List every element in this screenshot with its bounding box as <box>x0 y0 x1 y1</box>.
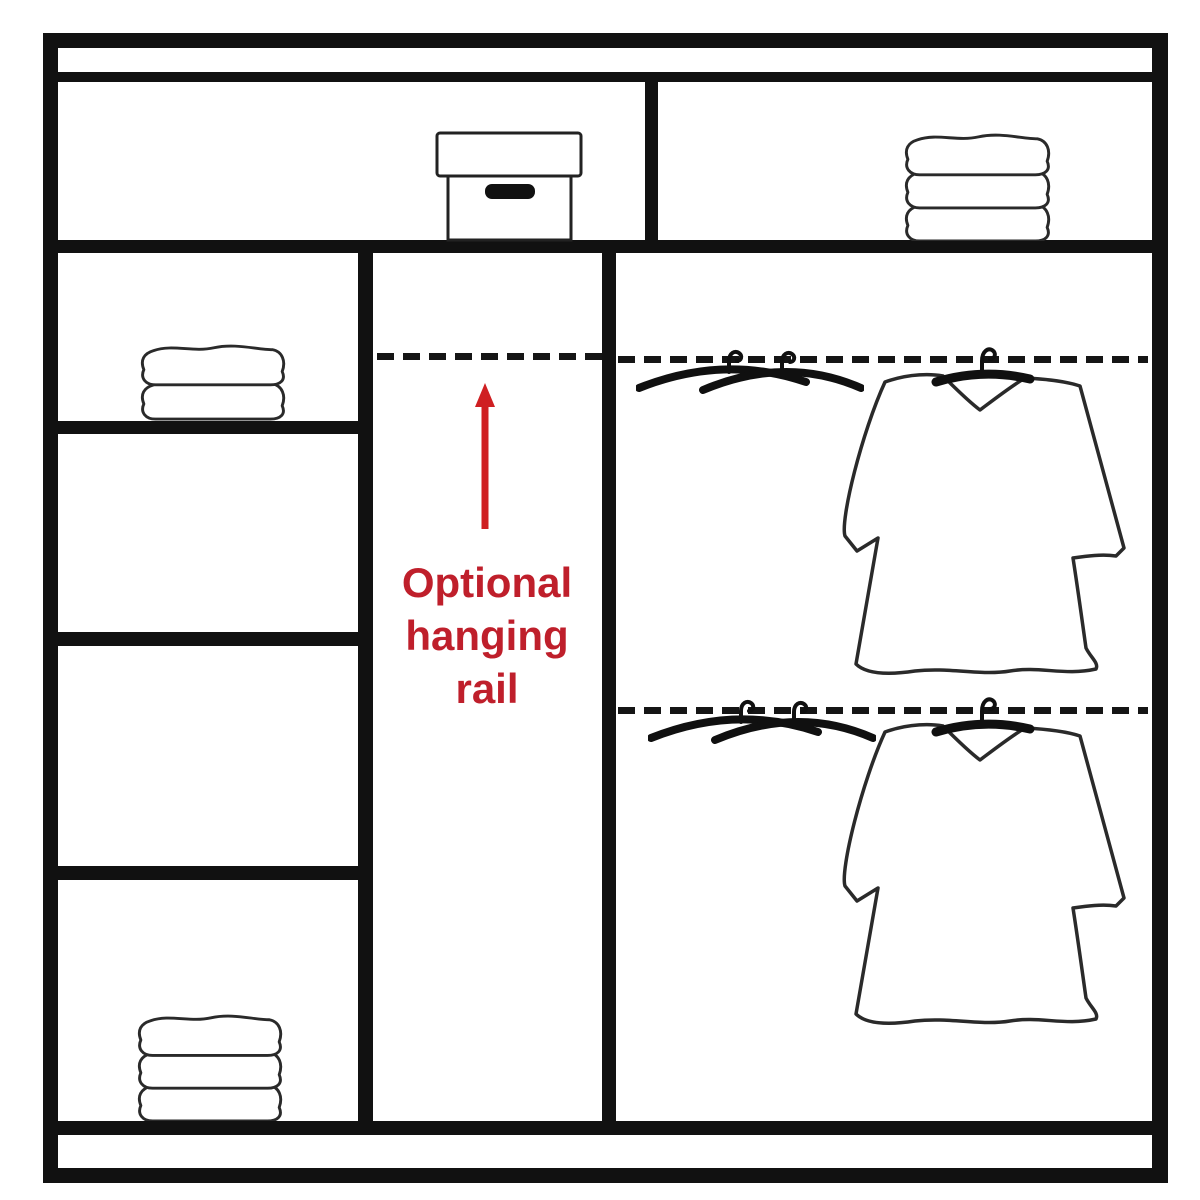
folded-towels-icon <box>135 1013 287 1121</box>
label-line-1: Optional <box>372 556 602 609</box>
frame-bottom <box>43 1168 1168 1183</box>
storage-box-icon <box>435 131 583 242</box>
middle-right-divider <box>602 240 616 1121</box>
crossed-hangers-icon <box>636 346 864 396</box>
folded-towels-icon <box>902 132 1055 241</box>
wardrobe-interior-diagram: Optional hanging rail <box>0 0 1200 1200</box>
left-shelf-2 <box>58 632 358 646</box>
top-shelf-divider <box>645 74 658 242</box>
left-column-divider <box>358 240 373 1121</box>
label-line-2: hanging <box>372 609 602 662</box>
optional-rail-dashed-line <box>377 353 602 360</box>
up-arrow-icon <box>475 383 495 530</box>
bottom-shelf <box>58 1121 1152 1135</box>
top-panel-line <box>58 72 1152 82</box>
label-line-3: rail <box>372 662 602 715</box>
folded-towels-icon <box>138 343 290 421</box>
frame-right <box>1152 33 1168 1183</box>
left-shelf-3 <box>58 866 358 880</box>
frame-left <box>43 33 58 1183</box>
optional-hanging-rail-label: Optional hanging rail <box>372 556 602 715</box>
left-shelf-1 <box>58 421 358 434</box>
hanging-shirt-icon <box>840 340 1135 680</box>
frame-top <box>43 33 1168 48</box>
hanging-shirt-icon <box>840 690 1135 1030</box>
